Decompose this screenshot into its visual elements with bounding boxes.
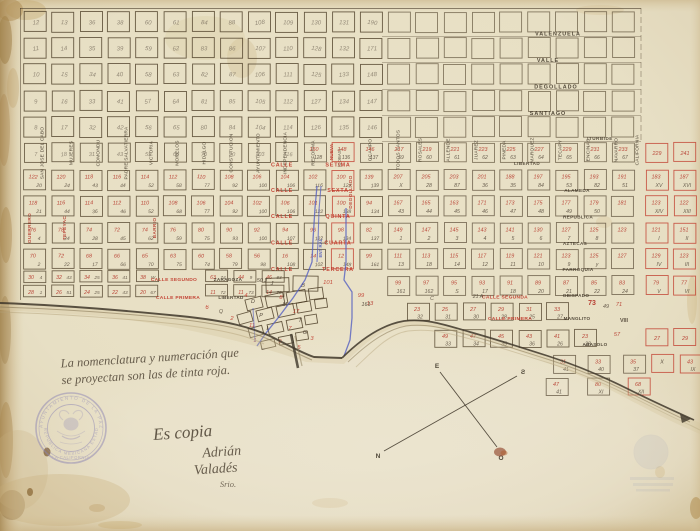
svg-text:44: 44 [426,209,432,215]
svg-text:115: 115 [450,254,460,260]
svg-text:22: 22 [593,289,600,295]
svg-text:136: 136 [342,155,351,161]
svg-text:217: 217 [394,147,405,153]
svg-text:31: 31 [526,307,532,313]
svg-text:197: 197 [534,175,544,181]
svg-text:106: 106 [252,174,261,180]
svg-text:94: 94 [366,200,372,206]
svg-text:36: 36 [89,20,96,26]
svg-text:CALLE PRIMERA: CALLE PRIMERA [488,316,532,322]
svg-text:93: 93 [232,236,238,242]
svg-text:163: 163 [450,201,459,207]
svg-text:181: 181 [618,201,627,207]
svg-text:ABASOLO: ABASOLO [582,342,607,347]
svg-text:161: 161 [371,262,380,268]
svg-text:18: 18 [426,262,432,268]
svg-text:31: 31 [89,152,96,158]
svg-text:17: 17 [61,125,69,131]
svg-text:41: 41 [117,99,124,106]
svg-text:116: 116 [113,174,122,180]
svg-text:128: 128 [314,155,323,161]
svg-text:66: 66 [120,262,126,268]
svg-text:30: 30 [28,275,34,281]
svg-text:OBISPADO: OBISPADO [563,293,590,298]
svg-text:100: 100 [336,174,345,180]
svg-text:51: 51 [622,183,628,189]
svg-text:165: 165 [422,201,432,207]
svg-text:56: 56 [254,253,260,259]
svg-text:87: 87 [563,281,570,287]
svg-text:77: 77 [204,183,210,189]
svg-text:229: 229 [562,147,572,153]
svg-text:VALLE: VALLE [537,58,559,64]
svg-text:Q: Q [219,309,223,315]
svg-text:127: 127 [618,254,628,260]
svg-text:S: S [455,289,459,295]
svg-text:DEGOLLADO: DEGOLLADO [348,175,354,208]
svg-text:N: N [376,453,381,460]
svg-text:112: 112 [113,200,122,206]
svg-text:106: 106 [280,200,289,207]
svg-text:28: 28 [27,290,34,296]
svg-text:34: 34 [84,275,90,281]
svg-text:27: 27 [469,307,477,313]
svg-text:114: 114 [141,174,150,180]
svg-text:109: 109 [283,20,294,26]
svg-text:92: 92 [254,227,260,233]
svg-text:SEXTA: SEXTA [327,188,349,194]
svg-text:102: 102 [308,174,317,180]
svg-text:21: 21 [35,209,42,215]
svg-text:61: 61 [454,155,460,161]
svg-text:78: 78 [58,227,64,233]
svg-text:84: 84 [538,183,544,189]
svg-text:195: 195 [562,175,572,181]
svg-text:52: 52 [148,183,154,189]
svg-text:29: 29 [681,336,688,342]
svg-text:81: 81 [201,99,208,106]
svg-text:116: 116 [283,152,293,159]
svg-text:14: 14 [454,262,460,268]
svg-text:43: 43 [687,360,693,366]
svg-text:38: 38 [117,20,124,26]
svg-text:36: 36 [529,342,535,348]
svg-text:24: 24 [63,236,70,242]
svg-text:4: 4 [484,236,487,242]
svg-text:114: 114 [283,125,294,132]
svg-text:45: 45 [498,334,505,340]
svg-text:146: 146 [367,125,378,131]
svg-text:97: 97 [423,281,430,287]
svg-text:CALIFORNIA: CALIFORNIA [635,134,641,165]
svg-text:100: 100 [336,200,345,207]
svg-text:231: 231 [590,147,600,153]
svg-text:35: 35 [88,46,96,53]
svg-text:24: 24 [83,290,90,296]
svg-text:83: 83 [619,281,625,287]
svg-text:129: 129 [652,254,661,260]
svg-text:ZARAGOZA: ZARAGOZA [214,277,243,282]
svg-text:99: 99 [358,293,365,299]
svg-text:62: 62 [148,236,154,242]
svg-text:11: 11 [32,46,39,53]
svg-text:P: P [259,313,263,319]
svg-text:60: 60 [426,155,432,161]
svg-text:104: 104 [280,174,289,180]
svg-text:122: 122 [28,174,37,181]
svg-text:74: 74 [204,262,210,268]
svg-text:33: 33 [595,360,601,366]
svg-text:Ƨ: Ƨ [521,369,526,376]
svg-text:110: 110 [197,174,206,181]
svg-text:134: 134 [371,209,380,215]
svg-text:21 A: 21 A [472,294,484,300]
svg-text:93: 93 [479,281,485,287]
svg-text:114: 114 [84,200,93,206]
svg-text:110: 110 [283,46,294,53]
svg-text:141: 141 [506,228,515,234]
svg-text:62: 62 [482,155,488,161]
svg-text:133: 133 [339,72,350,79]
svg-text:17: 17 [293,309,300,315]
svg-text:102: 102 [252,200,261,206]
svg-text:33: 33 [445,342,451,348]
svg-text:36: 36 [482,183,488,189]
svg-text:187: 187 [680,175,690,181]
svg-text:43: 43 [92,183,98,189]
svg-text:CALLE: CALLE [271,163,293,169]
svg-text:VIII: VIII [620,318,629,324]
svg-text:126: 126 [311,125,322,132]
svg-text:113: 113 [422,254,431,260]
svg-text:173: 173 [506,201,515,207]
svg-text:108: 108 [224,174,233,180]
svg-text:43: 43 [526,334,532,340]
svg-text:11: 11 [210,290,215,296]
svg-text:68: 68 [176,209,182,215]
svg-text:94: 94 [282,227,288,233]
svg-text:60: 60 [198,253,204,259]
svg-text:191: 191 [618,175,627,181]
svg-text:130: 130 [534,228,543,234]
svg-text:X: X [398,183,403,189]
svg-text:148: 148 [367,72,378,79]
svg-text:98: 98 [338,227,344,233]
svg-text:44: 44 [120,183,126,189]
svg-text:77: 77 [681,281,688,287]
svg-text:84: 84 [201,20,209,27]
svg-text:13: 13 [61,20,69,26]
svg-text:41: 41 [122,275,128,281]
svg-text:118: 118 [29,200,38,206]
svg-text:127: 127 [562,228,572,234]
svg-text:E: E [435,363,440,370]
svg-text:107: 107 [255,46,266,53]
svg-text:65: 65 [173,125,181,132]
svg-text:95: 95 [451,281,458,287]
svg-text:49: 49 [442,334,448,340]
svg-text:90: 90 [226,227,232,233]
svg-text:145: 145 [450,228,460,234]
svg-text:104: 104 [224,200,233,206]
svg-text:XV: XV [655,183,663,189]
svg-text:45: 45 [120,236,126,242]
svg-text:10: 10 [538,262,544,268]
svg-text:77: 77 [204,209,210,215]
svg-text:IX: IX [691,367,696,373]
svg-text:25: 25 [441,307,449,313]
svg-text:LA CALIFORNIA: LA CALIFORNIA [52,455,90,460]
svg-text:149: 149 [394,228,403,234]
svg-text:PADRE SALVATIERRA: PADRE SALVATIERRA [124,126,130,179]
svg-text:65: 65 [566,155,572,161]
svg-text:31: 31 [445,315,451,321]
svg-text:82: 82 [594,183,600,189]
svg-text:5: 5 [512,236,515,242]
svg-text:59: 59 [176,236,182,242]
svg-text:76: 76 [30,227,36,233]
svg-text:61: 61 [173,20,180,26]
svg-text:6: 6 [540,236,543,242]
svg-text:70: 70 [30,253,36,259]
svg-text:91: 91 [507,281,513,287]
svg-text:82: 82 [366,227,372,233]
svg-text:171: 171 [478,201,487,207]
svg-text:24: 24 [63,183,70,190]
svg-text:REPUBLICA: REPUBLICA [563,215,593,220]
svg-text:PARROQUIA: PARROQUIA [563,267,594,272]
svg-text:17: 17 [92,262,98,268]
svg-text:100: 100 [259,183,268,189]
svg-text:CALLE PRIMERA: CALLE PRIMERA [156,295,200,301]
svg-text:171: 171 [367,46,377,52]
svg-text:CALLE: CALLE [271,267,293,273]
svg-text:127: 127 [311,99,322,106]
svg-text:84: 84 [229,125,236,131]
svg-text:179: 179 [590,201,599,207]
svg-text:41: 41 [554,334,560,340]
svg-text:18: 18 [510,289,516,295]
svg-text:26: 26 [556,342,563,348]
svg-text:121: 121 [534,254,543,260]
svg-text:71: 71 [616,302,622,308]
svg-text:46: 46 [482,209,488,215]
svg-text:85: 85 [591,281,598,287]
svg-text:98: 98 [260,262,266,268]
svg-text:11: 11 [510,262,515,268]
svg-text:66: 66 [594,155,600,161]
svg-text:110: 110 [141,200,150,206]
svg-text:131: 131 [339,20,349,26]
svg-text:112: 112 [169,174,178,180]
svg-text:45: 45 [454,209,460,215]
svg-text:25: 25 [93,275,100,281]
svg-text:66: 66 [114,253,120,259]
svg-text:123: 123 [618,228,627,234]
svg-text:Adrián: Adrián [201,444,242,462]
svg-text:46: 46 [120,209,126,215]
svg-text:ENT RAL: ENT RAL [318,238,323,257]
svg-text:50: 50 [594,209,600,215]
svg-text:108: 108 [168,200,177,206]
svg-text:76: 76 [170,227,176,233]
svg-text:MANGLITO: MANGLITO [564,316,591,321]
svg-text:1: 1 [400,236,403,242]
svg-text:68: 68 [635,382,641,388]
svg-text:150: 150 [310,147,319,153]
svg-text:XI: XI [598,390,604,396]
svg-text:139: 139 [370,183,379,190]
svg-text:60: 60 [145,20,153,26]
svg-text:229: 229 [652,151,662,157]
svg-text:27: 27 [653,336,661,342]
svg-text:38: 38 [140,275,146,281]
svg-text:28: 28 [91,236,98,242]
svg-text:125: 125 [590,254,600,260]
svg-text:23: 23 [581,334,588,340]
svg-text:83: 83 [201,46,209,52]
svg-text:35: 35 [510,183,516,189]
svg-text:30: 30 [473,315,479,321]
svg-text:123: 123 [652,201,661,207]
svg-text:70: 70 [148,262,154,268]
svg-text:146: 146 [366,147,375,153]
svg-text:161: 161 [397,289,406,295]
svg-text:LIBERTAD: LIBERTAD [514,161,540,166]
svg-text:72: 72 [58,253,64,259]
svg-text:67: 67 [622,155,628,161]
svg-text:162: 162 [425,289,434,295]
svg-text:48: 48 [538,209,544,215]
svg-text:116: 116 [57,200,66,206]
svg-text:188: 188 [506,175,515,181]
svg-text:39: 39 [117,46,125,52]
svg-text:16: 16 [61,99,69,106]
svg-text:22: 22 [111,290,118,296]
svg-text:V: V [657,289,661,295]
svg-text:33: 33 [554,307,560,313]
svg-text:137: 137 [370,155,379,161]
svg-text:28: 28 [425,183,432,189]
svg-text:SANTIAGO: SANTIAGO [530,111,566,117]
svg-text:112: 112 [283,99,293,105]
svg-text:85: 85 [229,99,236,105]
svg-text:175: 175 [534,201,544,207]
svg-text:132: 132 [339,46,350,53]
svg-text:12: 12 [482,262,488,268]
svg-text:42: 42 [117,125,125,131]
svg-text:135: 135 [339,125,350,132]
svg-text:123: 123 [562,254,571,260]
svg-text:74: 74 [86,227,92,233]
svg-text:111: 111 [394,254,402,260]
svg-text:CALLE: CALLE [271,241,293,247]
svg-text:XVI: XVI [682,183,692,189]
svg-text:79: 79 [232,262,238,268]
svg-text:D: D [251,299,255,305]
svg-text:43: 43 [398,209,404,215]
svg-text:147: 147 [422,228,432,234]
svg-text:LIBERTAD: LIBERTAD [218,295,244,300]
svg-text:58: 58 [145,72,153,79]
svg-text:ITURBIDE: ITURBIDE [587,136,613,141]
svg-text:20: 20 [35,183,42,190]
svg-text:III: III [685,262,690,268]
svg-text:2: 2 [427,236,431,242]
svg-text:CALLE: CALLE [271,214,293,220]
svg-text:36: 36 [92,209,98,215]
svg-text:43: 43 [122,290,128,296]
svg-text:23: 23 [413,307,420,313]
svg-text:233: 233 [618,147,628,153]
svg-text:63: 63 [173,72,181,78]
svg-text:14: 14 [310,253,316,259]
svg-text:X: X [659,360,664,366]
svg-text:227: 227 [534,147,545,153]
svg-text:50 J: 50 J [257,278,267,284]
svg-text:92: 92 [232,209,238,215]
svg-text:ALAMEDA: ALAMEDA [564,188,590,193]
svg-text:89: 89 [535,281,541,287]
svg-text:10: 10 [33,72,40,78]
svg-text:139: 139 [364,174,373,180]
svg-text:73: 73 [248,290,254,296]
svg-text:2: 2 [37,262,41,268]
svg-text:225: 225 [506,147,517,153]
svg-text:9: 9 [250,275,253,281]
svg-text:3: 3 [456,236,459,242]
svg-text:101: 101 [323,280,333,286]
svg-text:J: J [270,281,274,287]
svg-text:106: 106 [255,72,266,79]
svg-text:C: C [430,296,434,302]
svg-text:101: 101 [308,200,317,207]
svg-text:20: 20 [139,290,146,296]
svg-text:123: 123 [680,254,689,260]
svg-text:43: 43 [117,152,124,158]
svg-text:Valadés: Valadés [194,460,239,478]
svg-text:51: 51 [66,290,72,296]
svg-text:DEGOLLADO: DEGOLLADO [534,85,577,91]
svg-text:100: 100 [259,236,268,242]
svg-text:VALENZUELA: VALENZUELA [535,32,581,38]
svg-text:y: y [595,262,599,268]
svg-text:Srio.: Srio. [220,479,236,489]
svg-text:75: 75 [176,262,182,268]
svg-text:QUINTA: QUINTA [325,214,350,220]
svg-text:143: 143 [478,228,487,234]
svg-text:1: 1 [40,290,43,296]
svg-text:203: 203 [449,175,459,181]
svg-text:205: 205 [421,175,432,181]
svg-text:35: 35 [630,360,637,366]
svg-text:49: 49 [603,304,609,310]
svg-text:74: 74 [142,227,148,233]
svg-text:207: 207 [393,175,404,181]
svg-text:52: 52 [148,209,154,215]
svg-text:XIV: XIV [654,209,664,215]
svg-text:TERCERA: TERCERA [322,267,354,273]
svg-text:58: 58 [226,253,232,259]
svg-text:147: 147 [367,99,378,106]
svg-text:73: 73 [588,300,596,307]
svg-text:25: 25 [93,290,100,296]
svg-text:148: 148 [338,147,347,153]
svg-text:33: 33 [89,99,97,105]
svg-text:44: 44 [64,209,70,215]
svg-text:122: 122 [680,201,689,207]
svg-text:26: 26 [55,290,62,296]
